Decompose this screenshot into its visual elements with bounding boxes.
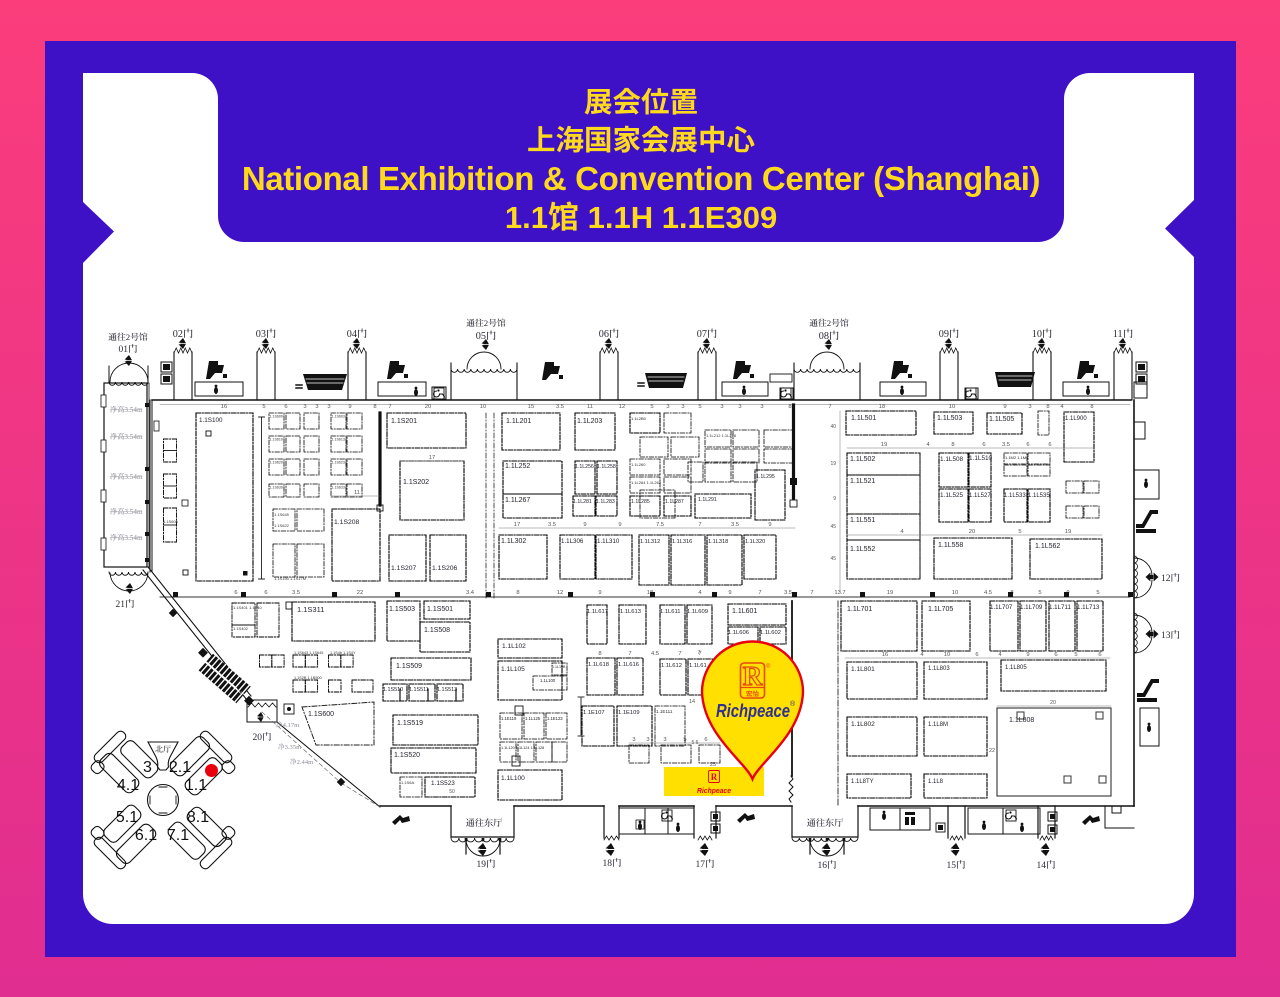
svg-text:1.1M2 1.1M6: 1.1M2 1.1M6	[1005, 455, 1029, 460]
svg-text:1.1S206: 1.1S206	[432, 565, 458, 572]
svg-text:1.1L310: 1.1L310	[597, 538, 620, 545]
svg-text:1.1S613: 1.1S613	[332, 438, 345, 442]
svg-text:1.1L602: 1.1L602	[760, 630, 781, 636]
svg-text:06: 06	[599, 329, 609, 340]
svg-text:14: 14	[689, 699, 695, 705]
svg-text:3.54m: 3.54m	[124, 433, 143, 441]
svg-text:50: 50	[449, 789, 455, 795]
svg-text:19: 19	[477, 860, 487, 870]
svg-text:20: 20	[1050, 700, 1056, 706]
svg-text:14: 14	[1037, 861, 1047, 871]
svg-text:3: 3	[632, 737, 635, 743]
svg-text:1.1S202: 1.1S202	[403, 479, 429, 486]
svg-text:1.1L125: 1.1L125	[525, 716, 541, 721]
svg-text:7: 7	[758, 590, 761, 596]
svg-text:1.1L316: 1.1L316	[672, 539, 692, 545]
svg-text:1.1S603: 1.1S603	[332, 415, 345, 419]
svg-text:7: 7	[698, 522, 701, 528]
svg-text:1.1L521: 1.1L521	[850, 478, 875, 485]
svg-text:16: 16	[818, 861, 828, 871]
svg-text:6: 6	[1026, 442, 1029, 448]
svg-text:9: 9	[1026, 652, 1029, 658]
svg-text:1.1L291: 1.1L291	[698, 497, 717, 503]
svg-text:2.1: 2.1	[169, 759, 191, 776]
svg-text:1.1S201: 1.1S201	[391, 418, 417, 425]
svg-text:5: 5	[1018, 529, 1021, 535]
svg-text:3.5: 3.5	[1002, 442, 1010, 448]
svg-text:10: 10	[952, 590, 958, 596]
svg-text:1.1L705: 1.1L705	[928, 606, 953, 613]
svg-text:16: 16	[221, 404, 227, 410]
svg-text:1.1L601: 1.1L601	[732, 608, 757, 615]
svg-text:1.1S620: 1.1S620	[270, 461, 283, 465]
svg-text:3: 3	[738, 404, 741, 410]
svg-text:1.1L201: 1.1L201	[506, 418, 531, 425]
svg-text:17: 17	[514, 522, 520, 528]
svg-text:1.1L562: 1.1L562	[1035, 543, 1060, 550]
svg-text:1.1L260: 1.1L260	[631, 462, 646, 467]
svg-text:1.1L617: 1.1L617	[587, 609, 608, 615]
svg-text:1.1L616: 1.1L616	[618, 662, 639, 668]
svg-text:3.5: 3.5	[548, 522, 556, 528]
svg-text:1.1L707: 1.1L707	[990, 604, 1013, 611]
svg-text:18: 18	[603, 859, 613, 869]
svg-text:5: 5	[1096, 590, 1099, 596]
svg-text:9: 9	[728, 590, 731, 596]
svg-text:20: 20	[425, 404, 431, 410]
svg-text:5: 5	[262, 404, 265, 410]
svg-text:8: 8	[373, 404, 376, 410]
svg-text:4.5: 4.5	[651, 651, 659, 657]
svg-text:1.1: 1.1	[505, 200, 548, 235]
svg-text:3: 3	[327, 404, 330, 410]
svg-text:3.5: 3.5	[292, 590, 300, 596]
svg-text:1.1S520: 1.1S520	[394, 752, 420, 759]
svg-text:45: 45	[830, 556, 836, 562]
svg-text:3: 3	[143, 759, 152, 776]
svg-text:9: 9	[768, 522, 771, 528]
svg-text:1.1S606: 1.1S606	[163, 519, 179, 524]
svg-text:1.1S610: 1.1S610	[270, 438, 283, 442]
svg-text:National Exhibition & Conventi: National Exhibition & Convention Center …	[242, 160, 1040, 197]
svg-text:1.1L802: 1.1L802	[851, 721, 875, 728]
svg-text:®: ®	[790, 700, 796, 708]
svg-text:®: ®	[766, 663, 771, 670]
svg-text:3.4: 3.4	[466, 590, 475, 596]
svg-text:1.1L558: 1.1L558	[938, 542, 963, 549]
svg-text:1.1L501: 1.1L501	[851, 415, 876, 422]
svg-text:7: 7	[698, 651, 701, 657]
svg-text:3.54m: 3.54m	[124, 406, 143, 414]
svg-text:1.1S4b 1.1S4Y: 1.1S4b 1.1S4Y	[330, 651, 356, 655]
svg-text:1.1L527: 1.1L527	[969, 493, 991, 499]
svg-text:6: 6	[1048, 442, 1051, 448]
svg-text:1.1S208: 1.1S208	[334, 519, 360, 526]
svg-text:1.1S623: 1.1S623	[332, 461, 345, 465]
svg-text:9: 9	[1003, 404, 1006, 410]
svg-text:1.1S630: 1.1S630	[270, 486, 283, 490]
svg-text:1.1L100: 1.1L100	[540, 678, 556, 683]
svg-text:3: 3	[720, 404, 723, 410]
svg-text:12: 12	[557, 590, 563, 596]
svg-text:3: 3	[663, 737, 666, 743]
svg-text:5: 5	[1074, 652, 1077, 658]
svg-text:1.1L285: 1.1L285	[631, 499, 650, 505]
svg-text:9: 9	[618, 522, 621, 528]
svg-text:2: 2	[484, 318, 488, 328]
svg-text:11: 11	[587, 404, 593, 410]
svg-text:6.1: 6.1	[135, 827, 157, 844]
svg-text:1.1L258: 1.1L258	[597, 464, 616, 470]
svg-text:15: 15	[528, 404, 534, 410]
svg-text:1.1S503: 1.1S503	[389, 606, 415, 613]
svg-text:1.1L709: 1.1L709	[1020, 604, 1043, 611]
svg-text:3.5: 3.5	[731, 522, 739, 528]
svg-text:1.1L535: 1.1L535	[1028, 493, 1050, 499]
svg-text:1.1L295: 1.1L295	[756, 474, 775, 480]
svg-text:02: 02	[173, 329, 183, 340]
svg-text:12: 12	[1161, 574, 1171, 584]
svg-text:4.5: 4.5	[984, 590, 992, 596]
svg-text:1.1L287: 1.1L287	[665, 499, 684, 505]
svg-text:9: 9	[583, 522, 586, 528]
svg-text:9: 9	[348, 404, 351, 410]
svg-text:8: 8	[1046, 404, 1049, 410]
svg-text:3: 3	[303, 404, 306, 410]
svg-text:1.1S511: 1.1S511	[409, 687, 429, 693]
svg-text:8.1: 8.1	[187, 809, 209, 826]
svg-text:1.1L525: 1.1L525	[940, 492, 964, 499]
svg-text:Richpeace: Richpeace	[697, 786, 731, 795]
svg-text:04: 04	[347, 329, 357, 340]
svg-text:21: 21	[116, 600, 126, 610]
svg-text:12: 12	[619, 404, 625, 410]
svg-text:Richpeace: Richpeace	[716, 700, 790, 721]
svg-text:1.1L502: 1.1L502	[850, 456, 875, 463]
svg-text:1.1S513: 1.1S513	[437, 687, 457, 693]
svg-text:1.1L611: 1.1L611	[660, 609, 681, 615]
svg-text:7.1: 7.1	[167, 827, 189, 844]
svg-text:3.54m: 3.54m	[124, 473, 143, 481]
svg-text:1.1: 1.1	[185, 777, 207, 794]
svg-text:1.1L61: 1.1L61	[689, 663, 707, 669]
svg-text:1.1L713: 1.1L713	[1077, 604, 1100, 611]
svg-text:2: 2	[827, 318, 831, 328]
svg-text:1.1E107: 1.1E107	[583, 710, 605, 716]
svg-text:1.1L203: 1.1L203	[577, 418, 602, 425]
svg-text:05: 05	[476, 331, 486, 342]
svg-text:3.54m: 3.54m	[124, 508, 143, 516]
svg-text:1.1E119: 1.1E119	[501, 716, 517, 721]
svg-text:3: 3	[646, 737, 649, 743]
svg-text:1.1L105: 1.1L105	[501, 666, 525, 673]
svg-text:3: 3	[1028, 404, 1031, 410]
svg-text:1.1L264 1.1L262: 1.1L264 1.1L262	[631, 480, 662, 485]
svg-text:19: 19	[887, 590, 893, 596]
svg-text:1.1S523: 1.1S523	[431, 780, 455, 787]
svg-text:1.1L302: 1.1L302	[501, 538, 526, 545]
svg-text:07: 07	[697, 329, 707, 340]
svg-text:10: 10	[480, 404, 486, 410]
svg-text:1.1L508: 1.1L508	[940, 456, 964, 463]
svg-text:1.1S600: 1.1S600	[270, 415, 283, 419]
svg-text:1.1L533: 1.1L533	[1004, 493, 1026, 499]
svg-text:8: 8	[516, 590, 519, 596]
svg-text:1.1L318: 1.1L318	[708, 539, 728, 545]
svg-text:8: 8	[598, 651, 601, 657]
svg-text:7: 7	[628, 651, 631, 657]
svg-text:19: 19	[830, 461, 836, 467]
svg-text:1.1L803: 1.1L803	[928, 666, 950, 672]
svg-text:1.1L306: 1.1L306	[561, 538, 584, 545]
svg-text:11: 11	[1113, 329, 1123, 340]
svg-text:1.1L612: 1.1L612	[661, 663, 682, 669]
svg-text:03: 03	[256, 329, 266, 340]
svg-text:20: 20	[253, 733, 263, 743]
svg-text:1.1L551: 1.1L551	[850, 517, 875, 524]
svg-text:15: 15	[947, 861, 957, 871]
svg-text:1.1S508: 1.1S508	[424, 627, 450, 634]
svg-text:22: 22	[357, 590, 363, 596]
svg-text:1.1L283: 1.1L283	[596, 499, 615, 505]
svg-text:1.1E111: 1.1E111	[656, 709, 673, 714]
svg-text:1.1L267: 1.1L267	[505, 497, 530, 504]
svg-text:1.1L102: 1.1L102	[502, 643, 526, 650]
svg-text:4.17m: 4.17m	[283, 722, 301, 729]
svg-text:1.1L801: 1.1L801	[851, 666, 875, 673]
svg-text:3: 3	[681, 404, 684, 410]
svg-text:10: 10	[949, 404, 955, 410]
svg-text:1.1S401 1.1S40: 1.1S401 1.1S40	[233, 605, 262, 610]
svg-text:5: 5	[698, 404, 701, 410]
svg-text:7: 7	[810, 590, 813, 596]
svg-text:1.1H: 1.1H	[588, 200, 653, 235]
svg-text:6: 6	[704, 737, 707, 743]
svg-text:01: 01	[119, 345, 129, 355]
svg-text:1.1E309: 1.1E309	[662, 200, 778, 235]
svg-text:1.1L510: 1.1L510	[969, 455, 993, 462]
svg-text:6: 6	[982, 442, 985, 448]
svg-text:1.1L252: 1.1L252	[505, 463, 530, 470]
svg-text:6: 6	[1098, 652, 1101, 658]
svg-text:7.5: 7.5	[656, 522, 664, 528]
svg-text:1.1L120 1.1L124 1.1L128: 1.1L120 1.1L124 1.1L128	[501, 746, 544, 750]
svg-text:1.1L805: 1.1L805	[1005, 665, 1027, 671]
svg-text:1.1S622: 1.1S622	[274, 523, 290, 528]
svg-text:45: 45	[830, 524, 836, 530]
svg-text:6: 6	[264, 590, 267, 596]
svg-text:10: 10	[1032, 329, 1042, 340]
svg-text:3: 3	[666, 404, 669, 410]
svg-text:1.1L505: 1.1L505	[989, 416, 1014, 423]
svg-text:1.1L312: 1.1L312	[640, 539, 660, 545]
svg-text:1.1L8: 1.1L8	[928, 779, 944, 785]
svg-text:1.1L701: 1.1L701	[847, 606, 872, 613]
svg-text:19: 19	[1065, 529, 1071, 535]
svg-text:1.1L8M: 1.1L8M	[928, 722, 948, 728]
svg-text:1.1L503: 1.1L503	[937, 415, 962, 422]
svg-text:19: 19	[881, 442, 887, 448]
svg-text:6: 6	[234, 590, 237, 596]
svg-text:1.1S2B 1.1B500: 1.1S2B 1.1B500	[294, 676, 322, 680]
svg-text:5 6: 5 6	[692, 740, 699, 746]
svg-text:9: 9	[833, 496, 836, 502]
svg-text:22: 22	[989, 748, 995, 754]
svg-text:7: 7	[828, 404, 831, 410]
svg-text:1.1S6A: 1.1S6A	[401, 780, 414, 785]
svg-text:1.1E123: 1.1E123	[547, 716, 563, 721]
svg-text:1.1S600: 1.1S600	[308, 711, 334, 718]
svg-text:1.1L2B0: 1.1L2B0	[631, 416, 647, 421]
svg-text:3.5: 3.5	[556, 404, 564, 410]
svg-text:8: 8	[1090, 404, 1093, 410]
svg-text:17: 17	[429, 455, 435, 461]
svg-text:1.1S207: 1.1S207	[391, 565, 417, 572]
svg-text:3.35m: 3.35m	[285, 744, 303, 751]
svg-text:2: 2	[126, 332, 130, 342]
svg-text:5: 5	[1038, 590, 1041, 596]
svg-text:1.1S402: 1.1S402	[233, 626, 249, 631]
svg-text:7: 7	[678, 651, 681, 657]
svg-text:13: 13	[1161, 631, 1171, 641]
svg-text:17: 17	[696, 860, 706, 870]
svg-text:1.1S633: 1.1S633	[332, 486, 345, 490]
svg-text:1.1L10B: 1.1L10B	[552, 665, 566, 669]
svg-text:16: 16	[882, 652, 888, 658]
svg-text:4.1: 4.1	[117, 777, 139, 794]
svg-text:6: 6	[1054, 652, 1057, 658]
svg-text:1.1S645: 1.1S645	[274, 512, 290, 517]
svg-text:1.1L613: 1.1L613	[620, 609, 641, 615]
svg-text:3: 3	[315, 404, 318, 410]
svg-text:1.1L320: 1.1L320	[745, 539, 765, 545]
svg-text:11: 11	[354, 490, 360, 496]
svg-text:1.1S643 1.1S645: 1.1S643 1.1S645	[294, 651, 323, 655]
svg-text:R: R	[711, 772, 718, 782]
svg-text:1.1L552: 1.1L552	[850, 546, 875, 553]
svg-text:2.44m: 2.44m	[297, 759, 315, 766]
svg-text:1.1L8TY: 1.1L8TY	[851, 779, 874, 785]
svg-text:18: 18	[879, 404, 885, 410]
svg-text:5: 5	[650, 404, 653, 410]
svg-text:09: 09	[939, 329, 949, 340]
svg-text:1.1S509: 1.1S509	[396, 663, 422, 670]
svg-text:1.1S311: 1.1S311	[297, 605, 324, 614]
svg-text:9: 9	[598, 590, 601, 596]
svg-text:10: 10	[944, 652, 950, 658]
svg-text:1.1L281: 1.1L281	[573, 499, 592, 505]
svg-text:6: 6	[975, 652, 978, 658]
svg-text:1.1S519: 1.1S519	[397, 720, 423, 727]
svg-text:6: 6	[284, 404, 287, 410]
svg-text:1.1L711: 1.1L711	[1049, 604, 1071, 611]
svg-text:1.1L618: 1.1L618	[588, 662, 609, 668]
svg-text:7: 7	[388, 404, 391, 410]
svg-text:1.1L212 1.1L218: 1.1L212 1.1L218	[706, 433, 737, 438]
svg-text:1.1S190 1.1S17M: 1.1S190 1.1S17M	[274, 576, 306, 581]
svg-text:1.1S501: 1.1S501	[427, 606, 453, 613]
svg-text:1.1L606: 1.1L606	[728, 630, 749, 636]
svg-text:R: R	[743, 661, 763, 691]
svg-text:3.5: 3.5	[784, 590, 792, 596]
svg-text:3: 3	[760, 404, 763, 410]
svg-text:1.1L100: 1.1L100	[501, 775, 525, 782]
svg-text:8: 8	[788, 404, 791, 410]
svg-text:1.1S100: 1.1S100	[199, 417, 223, 424]
svg-text:1.1E109: 1.1E109	[618, 710, 640, 716]
svg-text:1.1L900: 1.1L900	[1065, 416, 1087, 422]
svg-text:1.1L609: 1.1L609	[687, 609, 708, 615]
svg-text:3.54m: 3.54m	[124, 534, 143, 542]
svg-text:20: 20	[969, 529, 975, 535]
svg-text:13.7: 13.7	[834, 590, 845, 596]
svg-text:5.1: 5.1	[116, 809, 138, 826]
svg-text:1.1L808: 1.1L808	[1009, 717, 1034, 724]
svg-text:1.1L256: 1.1L256	[575, 464, 594, 470]
svg-text:8: 8	[951, 442, 954, 448]
svg-text:08: 08	[819, 331, 829, 342]
svg-text:40: 40	[830, 424, 836, 430]
